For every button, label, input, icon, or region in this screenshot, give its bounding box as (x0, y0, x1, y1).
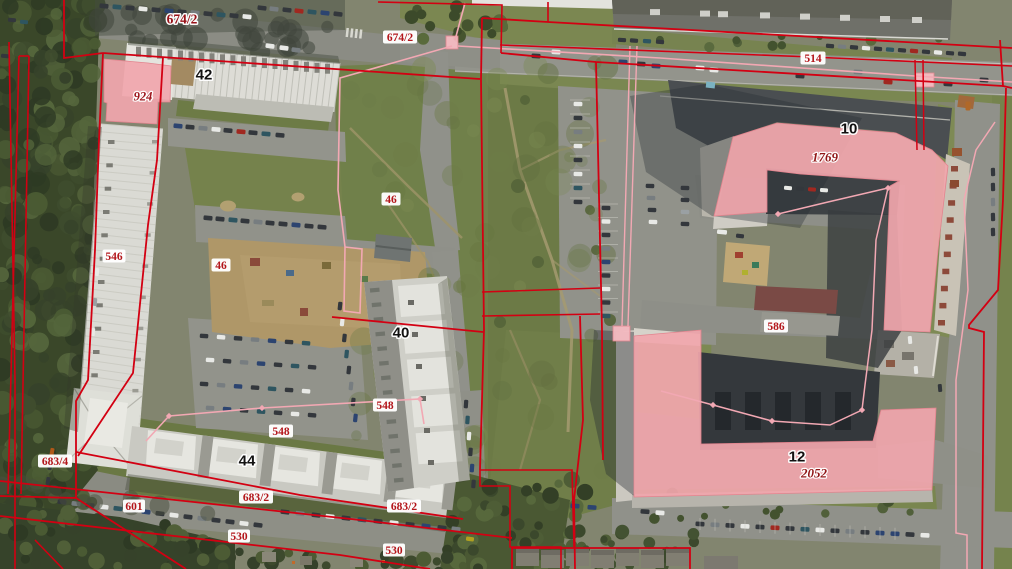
svg-text:46: 46 (385, 194, 397, 206)
svg-text:586: 586 (767, 321, 785, 333)
svg-text:601: 601 (125, 501, 143, 513)
svg-text:40: 40 (393, 324, 410, 341)
svg-text:683/2: 683/2 (243, 492, 269, 504)
svg-text:674/2: 674/2 (387, 32, 413, 44)
svg-text:548: 548 (376, 400, 394, 412)
svg-text:530: 530 (230, 531, 248, 543)
svg-text:10: 10 (841, 120, 858, 137)
svg-text:674/2: 674/2 (167, 12, 198, 27)
svg-text:683/2: 683/2 (391, 501, 417, 513)
svg-text:683/4: 683/4 (42, 456, 68, 468)
svg-text:514: 514 (804, 53, 822, 65)
svg-text:44: 44 (239, 452, 256, 469)
svg-text:12: 12 (789, 448, 806, 465)
svg-text:2052: 2052 (800, 466, 828, 481)
svg-text:1769: 1769 (812, 150, 839, 165)
svg-text:42: 42 (196, 66, 213, 83)
svg-text:546: 546 (105, 251, 123, 263)
svg-text:924: 924 (134, 89, 153, 103)
svg-text:46: 46 (215, 260, 227, 272)
svg-text:530: 530 (385, 545, 403, 557)
svg-text:548: 548 (272, 426, 290, 438)
